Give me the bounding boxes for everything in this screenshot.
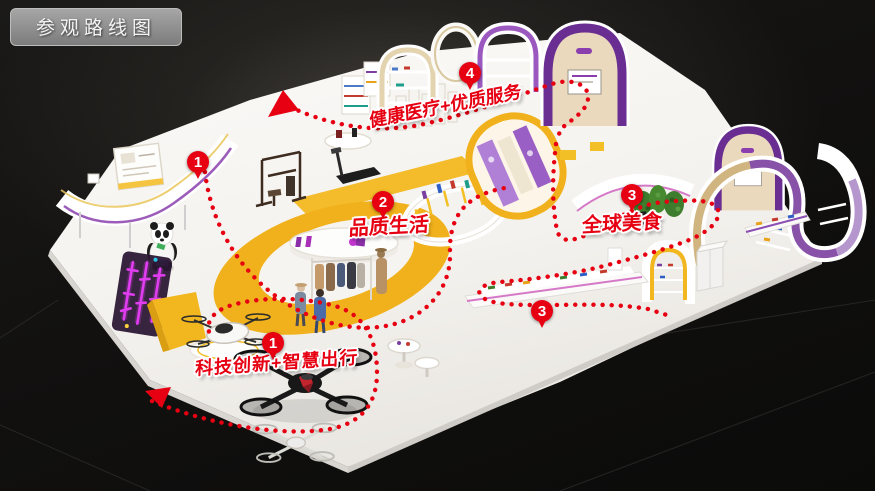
route-stop-marker-1-top: 1 xyxy=(187,151,209,173)
route-stop-marker-1-bottom: 1 xyxy=(262,332,284,354)
route-stop-number: 1 xyxy=(194,154,202,171)
route-stop-number: 3 xyxy=(628,187,636,204)
exhibition-route-map: 参观路线图 健康医疗+优质服务 品质生活 全球美食 科技创新+智慧出行 1 1 … xyxy=(0,0,875,491)
route-stop-number: 4 xyxy=(466,65,474,82)
route-stop-marker-2: 2 xyxy=(372,191,394,213)
route-stop-number: 3 xyxy=(538,303,546,320)
route-stop-number: 1 xyxy=(269,335,277,352)
route-stop-number: 2 xyxy=(379,194,387,211)
zone-label-life: 品质生活 xyxy=(348,208,429,241)
route-entry-arrow-icon xyxy=(145,387,171,408)
purple-arch-display xyxy=(548,28,622,126)
route-stop-marker-4: 4 xyxy=(459,62,481,84)
exhibition-3d-scene xyxy=(0,0,875,491)
storage-cabinet xyxy=(697,241,727,291)
map-title-text: 参观路线图 xyxy=(36,18,156,39)
route-stop-marker-3-lower: 3 xyxy=(531,300,553,322)
route-stop-marker-3-upper: 3 xyxy=(621,184,643,206)
map-title-badge: 参观路线图 xyxy=(10,8,182,46)
zone-label-food: 全球美食 xyxy=(581,205,662,238)
info-display-board xyxy=(114,143,164,189)
